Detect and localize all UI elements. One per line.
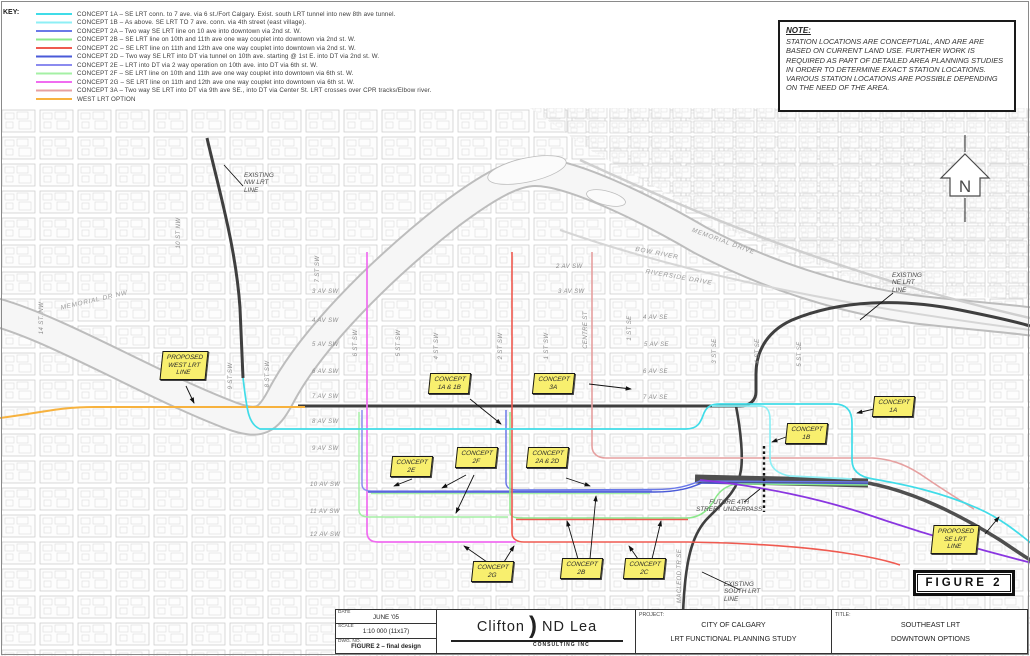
key-item-2g: CONCEPT 2G – SE LRT line on 11th and 12t… — [77, 79, 355, 86]
title-line2: DOWNTOWN OPTIONS — [832, 634, 1029, 643]
key-item-west: WEST LRT OPTION — [77, 96, 136, 103]
street-label: 3 AV SW — [558, 289, 585, 295]
key-item-3a: CONCEPT 3A – Two way SE LRT into DT via … — [77, 87, 432, 94]
street-label: MACLEOD TR SE — [677, 549, 683, 603]
note-title: NOTE: — [786, 26, 1008, 35]
street-label: 4 ST SW — [434, 333, 440, 360]
key-item-2a: CONCEPT 2A – Two way SE LRT line on 10 a… — [77, 28, 301, 35]
dwg-value: FIGURE 2 – final design — [336, 643, 436, 650]
street-label: 8 AV SW — [312, 419, 339, 425]
street-label: 2 ST SW — [498, 333, 504, 360]
key-item-1a: CONCEPT 1A – SE LRT conn. to 7 ave. via … — [77, 11, 396, 18]
existing-south-lrt-label: EXISTING SOUTH LRT LINE — [724, 581, 760, 603]
street-label: 5 AV SE — [644, 342, 669, 348]
street-label: 4 AV SE — [643, 315, 668, 321]
key-item-2c: CONCEPT 2C – SE LRT line on 11th and 12t… — [77, 45, 356, 52]
note-box: NOTE: STATION LOCATIONS ARE CONCEPTUAL, … — [778, 20, 1016, 112]
callout-concept-2g: CONCEPT 2G — [471, 561, 514, 582]
callout-concept-3a: CONCEPT 3A — [532, 373, 575, 394]
note-body: STATION LOCATIONS ARE CONCEPTUAL, AND AR… — [786, 37, 1008, 93]
project-label: PROJECT: — [639, 612, 664, 618]
street-label: 1 ST SE — [627, 315, 633, 340]
date-value: JUNE '05 — [336, 614, 436, 621]
callout-concept-1a: CONCEPT 1A — [872, 396, 915, 417]
street-label: 14 ST. NW — [39, 302, 45, 334]
callout-concept-2c: CONCEPT 2C — [623, 558, 666, 579]
callout-concept-2b: CONCEPT 2B — [560, 558, 603, 579]
street-label: 5 AV SW — [312, 342, 339, 348]
callout-concept-2e: CONCEPT 2E — [390, 456, 433, 477]
street-label: 7 ST SW — [315, 256, 321, 283]
street-label: CENTRE ST — [583, 311, 589, 349]
logo-clifton: Clifton — [477, 619, 525, 635]
callout-proposed-west-lrt: PROPOSED WEST LRT LINE — [159, 351, 208, 380]
street-label: 6 ST SW — [353, 330, 359, 357]
project-line1: CITY OF CALGARY — [636, 620, 831, 629]
street-label: 1 ST SW — [544, 333, 550, 360]
street-label: 5 ST SW — [396, 330, 402, 357]
project-section: PROJECT: CITY OF CALGARY LRT FUNCTIONAL … — [636, 610, 832, 653]
logo-swoosh: ) — [529, 617, 538, 635]
logo-ndlea: ND Lea — [542, 619, 597, 635]
project-line2: LRT FUNCTIONAL PLANNING STUDY — [636, 634, 831, 643]
key-item-2d: CONCEPT 2D – Two way SE LRT into DT via … — [77, 53, 379, 60]
street-label: 6 AV SE — [643, 369, 668, 375]
street-label: 10 AV SW — [310, 482, 340, 488]
title-block: DATE JUNE '05 SCALE 1:10 000 (11x17) DWG… — [335, 609, 1028, 654]
street-label: 9 AV SW — [312, 446, 339, 452]
street-label: 2 AV SW — [556, 264, 583, 270]
street-label: 7 AV SW — [312, 394, 339, 400]
street-label: 11 AV SW — [310, 509, 340, 515]
street-label: 6 AV SW — [312, 369, 339, 375]
callout-concept-1b: CONCEPT 1B — [785, 423, 828, 444]
street-label: 3 AV SW — [312, 289, 339, 295]
street-label: 8 ST SW — [265, 361, 271, 388]
title-section: TITLE: SOUTHEAST LRT DOWNTOWN OPTIONS — [832, 610, 1029, 653]
figure-number-box: FIGURE 2 — [913, 570, 1015, 596]
key-item-1b: CONCEPT 1B – As above. SE LRT TO 7 ave. … — [77, 19, 306, 26]
date-row: DATE JUNE '05 — [336, 610, 436, 624]
street-label: 12 AV SW — [310, 532, 340, 538]
existing-ne-lrt-label: EXISTING NE LRT LINE — [892, 272, 922, 294]
street-label: 9 ST SW — [228, 363, 234, 390]
title-label: TITLE: — [835, 612, 851, 618]
title-line1: SOUTHEAST LRT — [832, 620, 1029, 629]
logo-subtitle: CONSULTING INC — [533, 642, 590, 648]
street-label: 3 ST SE — [712, 338, 718, 363]
street-label: 4 ST SE — [755, 338, 761, 363]
callout-concept-2a-2d: CONCEPT 2A & 2D — [526, 447, 569, 468]
callout-concept-2f: CONCEPT 2F — [455, 447, 498, 468]
figure-number-label: FIGURE 2 — [917, 574, 1011, 592]
existing-nw-lrt-label: EXISTING NW LRT LINE — [244, 172, 274, 194]
consultant-logo: Clifton ) ND Lea CONSULTING INC — [437, 610, 636, 653]
callout-concept-1a-1b: CONCEPT 1A & 1B — [428, 373, 471, 394]
key-item-2b: CONCEPT 2B – SE LRT line on 10th and 11t… — [77, 36, 356, 43]
title-block-info: DATE JUNE '05 SCALE 1:10 000 (11x17) DWG… — [336, 610, 437, 653]
key-item-2f: CONCEPT 2F – SE LRT line on 10th and 11t… — [77, 70, 354, 77]
street-label: 7 AV SE — [643, 395, 668, 401]
scale-value: 1:10 000 (11x17) — [336, 628, 436, 635]
drawing-sheet: N KEY: CONCEPT 1A – SE LRT conn. to 7 av… — [0, 0, 1030, 656]
scale-row: SCALE 1:10 000 (11x17) — [336, 624, 436, 638]
street-label: 4 AV SW — [312, 318, 339, 324]
logo-text: Clifton ) ND Lea — [451, 618, 623, 642]
key-item-2e: CONCEPT 2E – LRT into DT via 2 way opera… — [77, 62, 318, 69]
underpass-label: FUTURE 4TH STREET UNDERPASS — [696, 499, 762, 514]
north-arrow-letter: N — [959, 177, 971, 196]
street-label: 5 ST SE — [797, 341, 803, 366]
dwg-row: DWG. NO. FIGURE 2 – final design — [336, 639, 436, 653]
callout-proposed-se-lrt: PROPOSED SE LRT LINE — [930, 525, 979, 554]
street-label: 10 ST NW — [176, 218, 182, 249]
